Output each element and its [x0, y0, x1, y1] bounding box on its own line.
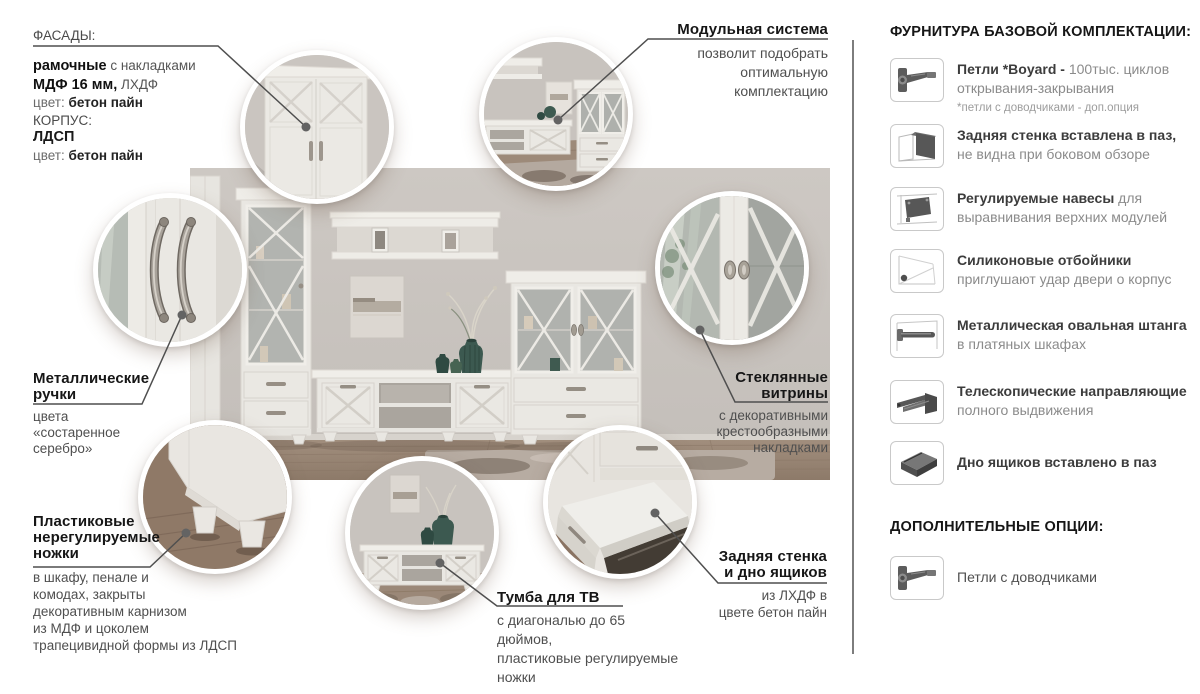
callout-tv-stand: Тумба для ТВ с диагональю до 65 дюймов, … — [497, 590, 682, 687]
callout-circle-drawer — [543, 425, 697, 579]
wall-art — [350, 276, 404, 338]
item-bold: Регулируемые навесы — [957, 190, 1114, 206]
feet-body-line: комодах, закрыты — [33, 586, 248, 603]
hardware-item-drawer-bottom: Дно ящиков вставлено в паз — [890, 441, 1197, 485]
tall-vitrine — [230, 188, 322, 450]
modular-set-closeup — [484, 42, 628, 186]
option-label: Петли с доводчиками — [957, 568, 1197, 587]
feet-body-line: в шкафу, пенале и — [33, 569, 248, 586]
hardware-item-rod: Металлическая овальная штанга в платяных… — [890, 314, 1197, 358]
callout-vitrines: Стеклянные витрины с декоративными крест… — [678, 370, 828, 456]
item-rest: полного выдвижения — [957, 401, 1197, 420]
handles-title-line: Металлические — [33, 371, 183, 387]
feet-body-line: трапецивидной формы из ЛДСП — [33, 637, 248, 654]
hardware-item-hangers: Регулируемые навесы для выравнивания вер… — [890, 187, 1197, 231]
callout-handles: Металлические ручки цвета «состаренное с… — [33, 371, 183, 457]
option-item-soft-close-hinges: Петли с доводчиками — [890, 556, 1197, 600]
vitrines-title-line: витрины — [678, 386, 828, 402]
item-bold: Телескопические направляющие — [957, 382, 1197, 401]
callout-facades: ФАСАДЫ: рамочные с накладками МДФ 16 мм,… — [33, 28, 243, 164]
handles-body-line: «состаренное — [33, 425, 183, 441]
callout-circle-tv-stand — [345, 456, 499, 610]
vitrines-title-line: Стеклянные — [678, 370, 828, 386]
facades-line3-value: бетон пайн — [69, 95, 143, 110]
modular-body-line: оптимальную — [628, 63, 828, 82]
wardrobe-closeup — [245, 55, 389, 199]
feet-title-line: ножки — [33, 546, 248, 562]
infographic-canvas: ФАСАДЫ: рамочные с накладками МДФ 16 мм,… — [0, 0, 1200, 694]
item-note: *петли с доводчиками - доп.опция — [957, 101, 1197, 115]
facades-line5: ЛДСП — [33, 129, 243, 147]
callout-modular: Модульная система позволит подобрать опт… — [628, 22, 828, 101]
hardware-item-back-panel: Задняя стенка вставлена в паз, не видна … — [890, 124, 1197, 168]
section-divider — [852, 40, 854, 654]
facades-line6-value: бетон пайн — [69, 148, 143, 163]
feet-title-line: нерегулируемые — [33, 530, 248, 546]
hardware-title: ФУРНИТУРА БАЗОВОЙ КОМПЛЕКТАЦИИ: — [890, 24, 1191, 40]
item-bold: Петли *Boyard - — [957, 61, 1069, 77]
feet-title-line: Пластиковые — [33, 514, 248, 530]
feet-body-line: из МДФ и цоколем — [33, 620, 248, 637]
hardware-item-bumpers: Силиконовые отбойники приглушают удар дв… — [890, 249, 1197, 293]
item-rest: не видна при боковом обзоре — [957, 145, 1197, 164]
icon-box — [890, 314, 944, 358]
item-bold: Силиконовые отбойники — [957, 251, 1197, 270]
handles-title-line: ручки — [33, 387, 183, 403]
options-title: ДОПОЛНИТЕЛЬНЫЕ ОПЦИИ: — [890, 519, 1104, 535]
tv-title: Тумба для ТВ — [497, 590, 682, 606]
tv-stand-closeup — [350, 461, 494, 605]
facades-line2-bold: МДФ 16 мм, — [33, 77, 117, 93]
modular-body-line: позволит подобрать — [628, 44, 828, 63]
facades-line1-rest: с накладками — [107, 58, 196, 73]
hinge-icon — [895, 63, 939, 97]
wardrobe-rod-icon — [895, 319, 939, 353]
callout-feet: Пластиковые нерегулируемые ножки в шкафу… — [33, 514, 248, 654]
callout-circle-vitrine — [655, 191, 809, 345]
drawer-bottom-icon — [895, 446, 939, 480]
feet-body-line: декоративным карнизом — [33, 603, 248, 620]
icon-box — [890, 187, 944, 231]
icon-box — [890, 58, 944, 102]
item-bold: Металлическая овальная штанга — [957, 316, 1197, 335]
facades-title: ФАСАДЫ: — [33, 28, 243, 43]
back-body-line: из ЛХДФ в — [687, 587, 827, 604]
handles-closeup — [98, 198, 242, 342]
item-bold: Дно ящиков вставлено в паз — [957, 453, 1197, 472]
back-title-line: Задняя стенка — [687, 549, 827, 565]
icon-box — [890, 380, 944, 424]
vitrines-body-line: крестообразными — [678, 424, 828, 440]
facades-line6-label: цвет: — [33, 148, 69, 163]
item-rest: в платяных шкафах — [957, 335, 1197, 354]
open-drawer-closeup — [548, 430, 692, 574]
tv-body-line: с диагональю до 65 дюймов, — [497, 611, 682, 649]
vitrines-body-line: с декоративными — [678, 408, 828, 424]
back-title-line: и дно ящиков — [687, 565, 827, 581]
back-panel-icon — [895, 129, 939, 163]
handles-body-line: цвета — [33, 409, 183, 425]
hinge-icon — [895, 561, 939, 595]
item-rest: приглушают удар двери о корпус — [957, 270, 1197, 289]
facades-line2-rest: ЛХДФ — [117, 77, 158, 92]
vitrines-body-line: накладками — [678, 440, 828, 456]
item-bold: Задняя стенка вставлена в паз, — [957, 126, 1197, 145]
callout-circle-wardrobe — [240, 50, 394, 204]
icon-box — [890, 556, 944, 600]
hardware-item-hinges: Петли *Boyard - 100тыс. циклов открывани… — [890, 58, 1197, 115]
facades-line3-label: цвет: — [33, 95, 69, 110]
back-body-line: цвете бетон пайн — [687, 604, 827, 621]
facades-line4: КОРПУС: — [33, 112, 243, 130]
telescopic-slides-icon — [895, 385, 939, 419]
handles-body-line: серебро» — [33, 441, 183, 457]
tv-body-line: пластиковые регулируемые — [497, 649, 682, 668]
callout-back-panel: Задняя стенка и дно ящиков из ЛХДФ в цве… — [687, 549, 827, 621]
cabinet-hanger-icon — [895, 192, 939, 226]
modular-body-line: комплектацию — [628, 82, 828, 101]
silicone-bumper-icon — [895, 254, 939, 288]
tv-body-line: ножки — [497, 668, 682, 687]
modular-title: Модульная система — [628, 22, 828, 38]
icon-box — [890, 441, 944, 485]
icon-box — [890, 124, 944, 168]
icon-box — [890, 249, 944, 293]
wall-shelf — [330, 212, 500, 259]
callout-circle-modular-set — [479, 37, 633, 191]
hardware-item-slides: Телескопические направляющие полного выд… — [890, 380, 1197, 424]
callout-circle-handles — [93, 193, 247, 347]
facades-line1-bold: рамочные — [33, 58, 107, 74]
facades-lines: рамочные с накладками МДФ 16 мм, ЛХДФ цв… — [33, 57, 243, 164]
vitrine-closeup — [660, 196, 804, 340]
